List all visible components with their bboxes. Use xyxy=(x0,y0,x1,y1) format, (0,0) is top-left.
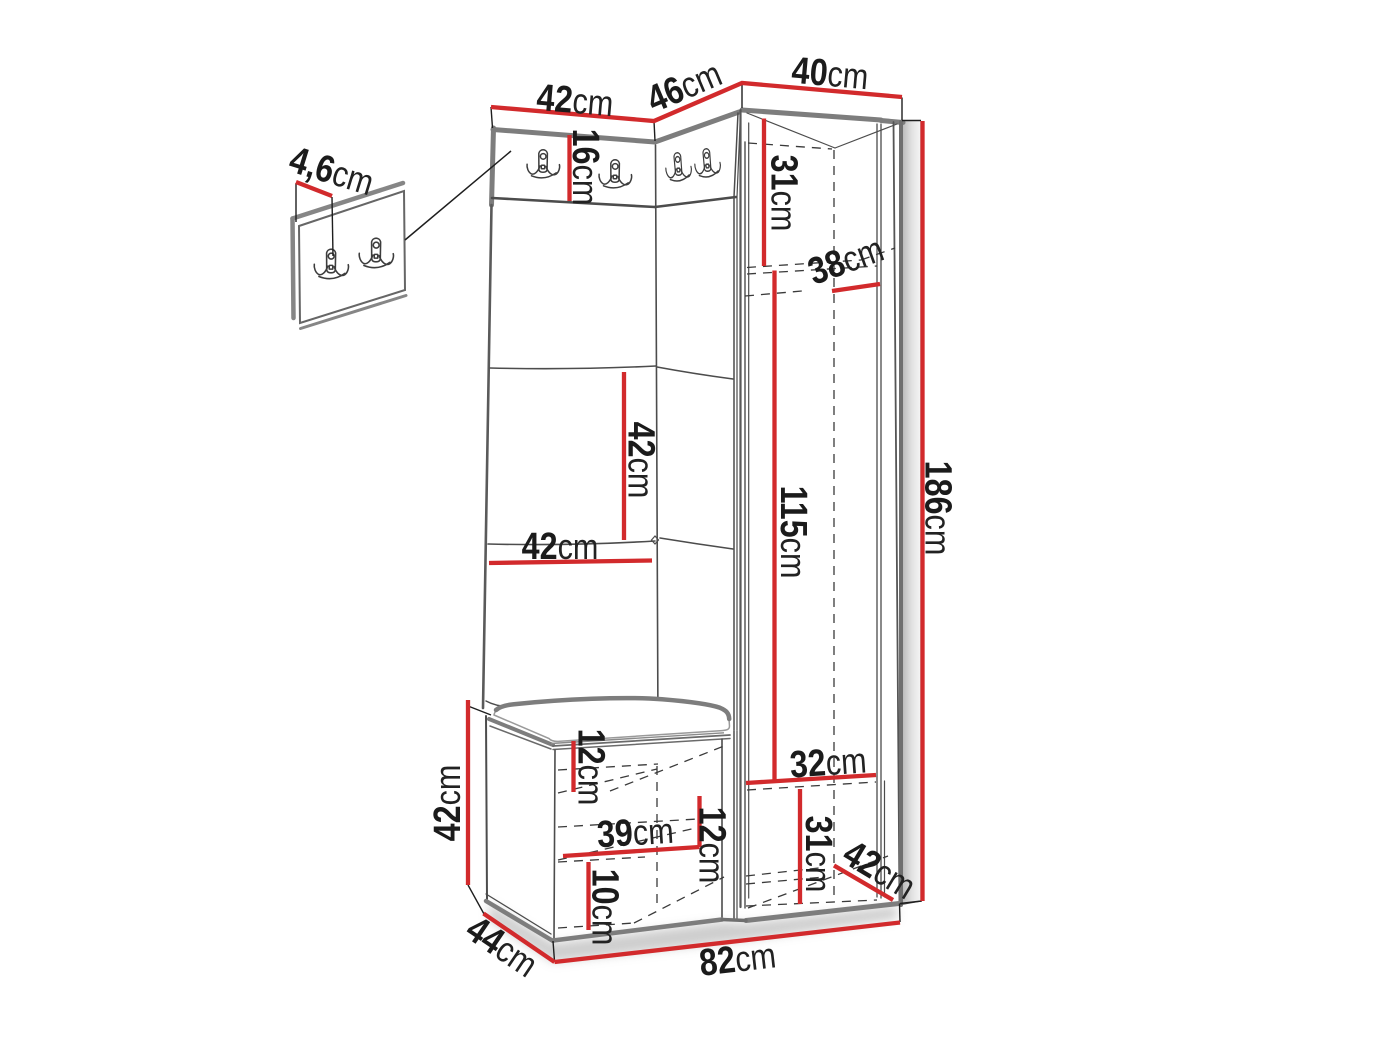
svg-text:12cm: 12cm xyxy=(691,807,733,884)
svg-text:31cm: 31cm xyxy=(797,816,839,893)
svg-text:82cm: 82cm xyxy=(697,934,778,984)
svg-text:115cm: 115cm xyxy=(772,486,814,579)
svg-text:12cm: 12cm xyxy=(570,729,612,806)
svg-text:39cm: 39cm xyxy=(596,809,675,856)
svg-text:10cm: 10cm xyxy=(584,869,626,946)
svg-text:42cm: 42cm xyxy=(427,765,469,842)
svg-text:42cm: 42cm xyxy=(522,526,599,568)
svg-text:42cm: 42cm xyxy=(535,76,615,124)
svg-text:31cm: 31cm xyxy=(763,155,805,232)
svg-text:186cm: 186cm xyxy=(917,461,959,556)
svg-text:42cm: 42cm xyxy=(620,422,662,499)
svg-text:32cm: 32cm xyxy=(788,739,867,786)
svg-text:16cm: 16cm xyxy=(564,129,606,206)
svg-text:40cm: 40cm xyxy=(790,49,870,98)
